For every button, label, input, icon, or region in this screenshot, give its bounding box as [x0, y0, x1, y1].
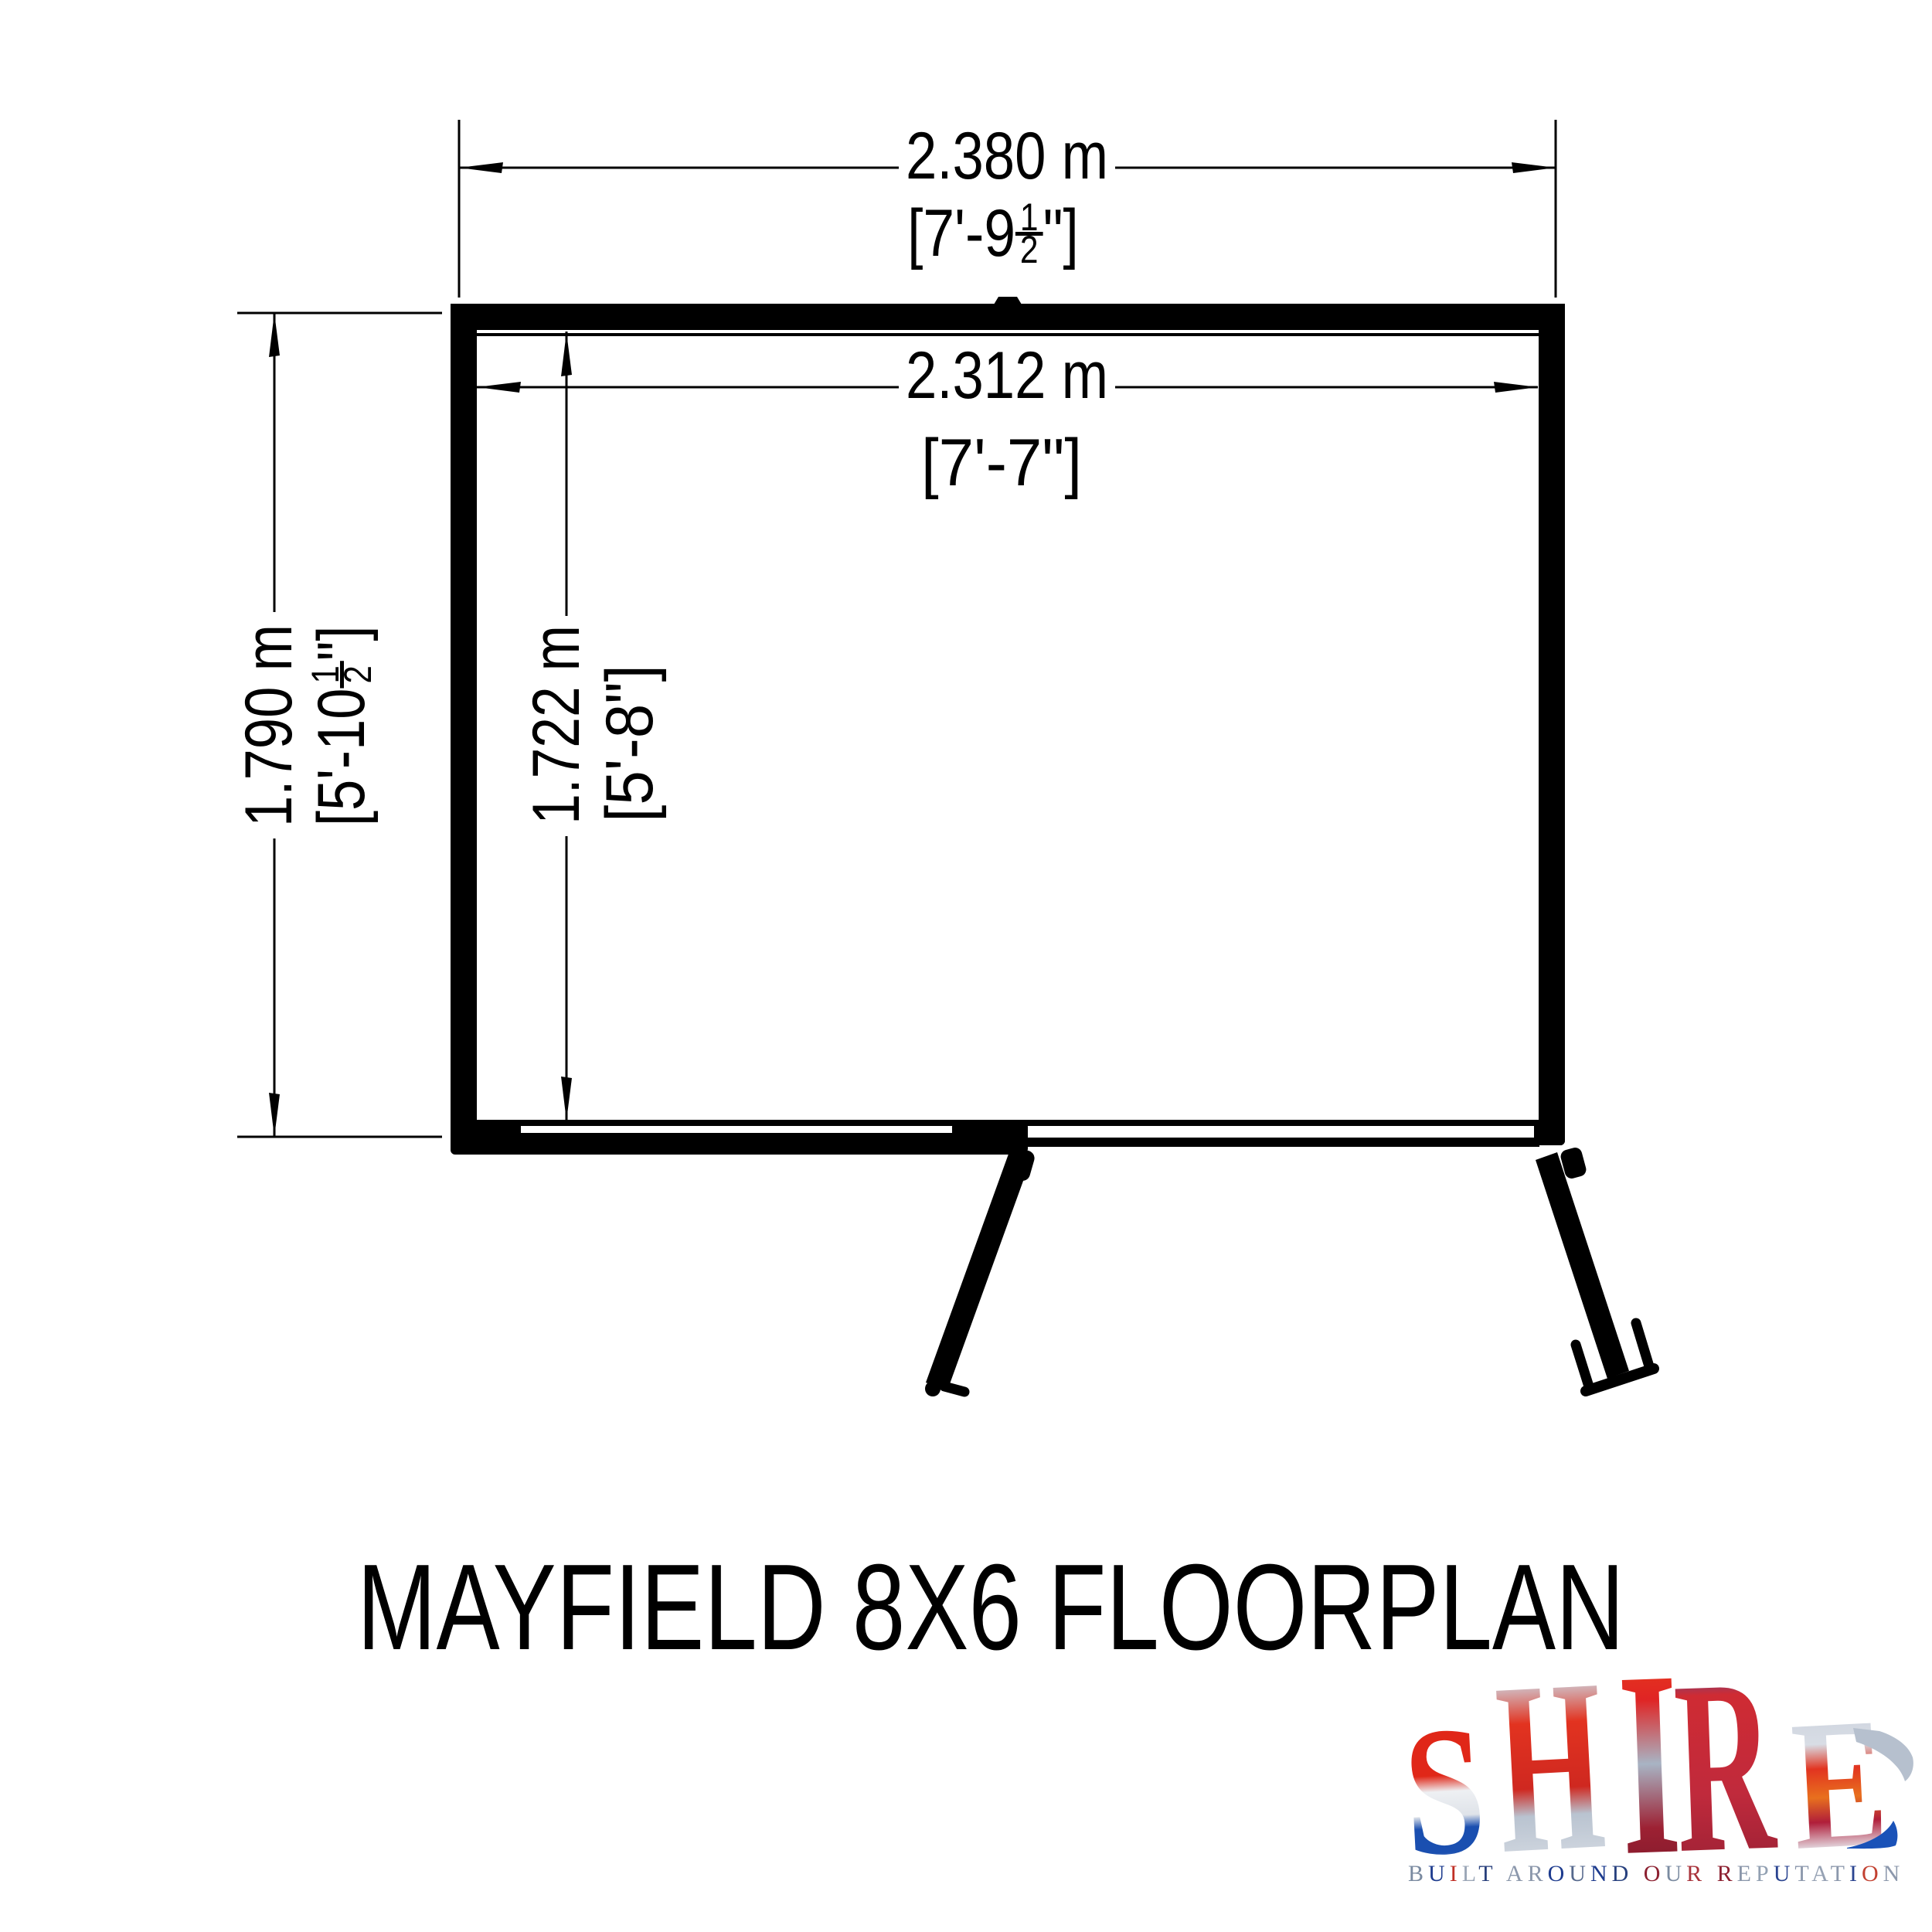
svg-text:2.380 m: 2.380 m: [906, 118, 1108, 192]
svg-text:MAYFIELD 8X6 FLOORPLAN: MAYFIELD 8X6 FLOORPLAN: [357, 1539, 1624, 1675]
svg-text:[7'-7"]: [7'-7"]: [921, 425, 1082, 499]
svg-text:2.312 m: 2.312 m: [906, 338, 1108, 412]
svg-text:"]: "]: [1043, 196, 1079, 270]
svg-text:[5'-10: [5'-10: [304, 689, 378, 826]
svg-text:1.790 m: 1.790 m: [231, 624, 305, 827]
svg-text:[7'-9: [7'-9: [907, 196, 1015, 270]
svg-text:"]: "]: [304, 626, 378, 662]
svg-text:BUILT AROUND OUR REPUTATION: BUILT AROUND OUR REPUTATION: [1408, 1861, 1904, 1886]
svg-text:1.722 m: 1.722 m: [519, 625, 594, 825]
svg-text:E: E: [1787, 1679, 1892, 1889]
svg-text:[5'-8"]: [5'-8"]: [592, 665, 666, 822]
